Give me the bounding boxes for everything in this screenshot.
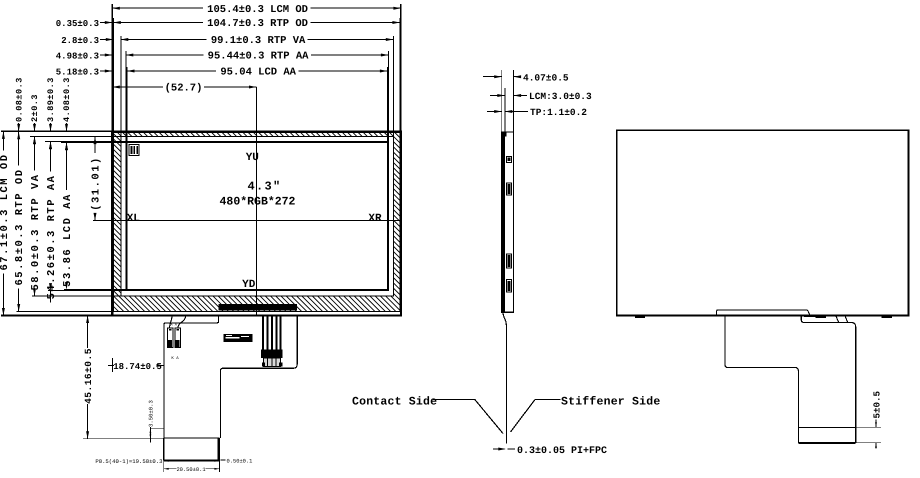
svg-text:0.3±0.05 PI+FPC: 0.3±0.05 PI+FPC	[517, 446, 607, 457]
svg-text:480*RGB*272: 480*RGB*272	[220, 196, 296, 209]
svg-text:K A: K A	[171, 356, 179, 361]
svg-text:105.4±0.3 LCM OD: 105.4±0.3 LCM OD	[207, 4, 308, 16]
svg-text:53.86 LCD AA: 53.86 LCD AA	[62, 193, 74, 287]
svg-text:YU: YU	[246, 152, 259, 164]
svg-text:65.8±0.3 RTP OD: 65.8±0.3 RTP OD	[14, 168, 26, 285]
svg-text:0.35±0.3: 0.35±0.3	[56, 19, 99, 29]
svg-text:99.1±0.3 RTP VA: 99.1±0.3 RTP VA	[211, 35, 306, 47]
svg-text:4.08±0.3: 4.08±0.3	[62, 77, 72, 122]
svg-text:YD: YD	[242, 279, 256, 291]
svg-text:95.44±0.3 RTP AA: 95.44±0.3 RTP AA	[208, 51, 310, 63]
svg-text:104.7±0.3 RTP OD: 104.7±0.3 RTP OD	[207, 18, 308, 30]
svg-text:5.18±0.3: 5.18±0.3	[56, 67, 99, 77]
svg-text:18.74±0.5: 18.74±0.5	[113, 362, 162, 372]
svg-text:5±0.5: 5±0.5	[872, 390, 883, 418]
svg-text:Contact Side: Contact Side	[352, 396, 437, 409]
svg-text:A A: A A	[171, 323, 178, 328]
svg-text:P0.5(40-1)=19.50±0.3: P0.5(40-1)=19.50±0.3	[95, 458, 162, 465]
svg-text:(52.7): (52.7)	[165, 83, 203, 95]
svg-text:3.50±0.3: 3.50±0.3	[148, 400, 155, 427]
svg-text:0.50±0.1: 0.50±0.1	[227, 458, 253, 464]
svg-text:2±0.3: 2±0.3	[30, 94, 40, 122]
svg-text:0.08±0.3: 0.08±0.3	[14, 77, 24, 122]
svg-text:45.16±0.5: 45.16±0.5	[83, 348, 94, 404]
svg-text:58.0±0.3 RTP VA: 58.0±0.3 RTP VA	[30, 173, 42, 290]
svg-text:2.8±0.3: 2.8±0.3	[61, 36, 99, 46]
svg-text:4.98±0.3: 4.98±0.3	[56, 51, 99, 61]
svg-text:4.3": 4.3"	[247, 180, 281, 194]
svg-text:XL: XL	[127, 213, 141, 225]
svg-text:(31.01): (31.01)	[90, 156, 102, 211]
svg-text:LCM:3.0±0.3: LCM:3.0±0.3	[529, 91, 592, 102]
svg-text:95.04 LCD AA: 95.04 LCD AA	[220, 67, 296, 79]
svg-text:54.26±0.3 RTP AA: 54.26±0.3 RTP AA	[46, 175, 58, 300]
svg-text:XR: XR	[368, 213, 382, 225]
svg-text:67.1±0.3 LCM OD: 67.1±0.3 LCM OD	[0, 153, 11, 270]
svg-text:TP:1.1±0.2: TP:1.1±0.2	[530, 107, 587, 118]
svg-text:Stiffener Side: Stiffener Side	[561, 396, 660, 409]
svg-text:4.07±0.5: 4.07±0.5	[523, 72, 569, 83]
svg-text:20.50±0.1: 20.50±0.1	[176, 467, 205, 473]
svg-text:3.89±0.3: 3.89±0.3	[46, 77, 56, 122]
